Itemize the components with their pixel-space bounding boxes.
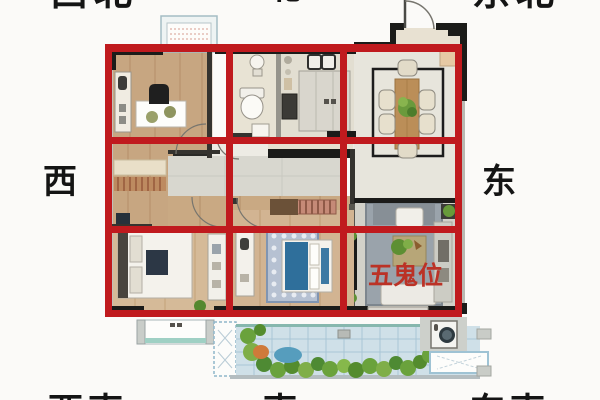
svg-text:南: 南 — [263, 392, 297, 400]
svg-text:东南: 东南 — [470, 392, 550, 400]
svg-text:东: 东 — [482, 162, 516, 201]
svg-text:北: 北 — [267, 0, 301, 7]
svg-text:东北: 东北 — [472, 0, 560, 14]
svg-text:西北: 西北 — [50, 0, 138, 14]
svg-text:五鬼位: 五鬼位 — [368, 261, 443, 290]
svg-text:西南: 西南 — [48, 392, 128, 400]
svg-text:西: 西 — [43, 163, 77, 201]
